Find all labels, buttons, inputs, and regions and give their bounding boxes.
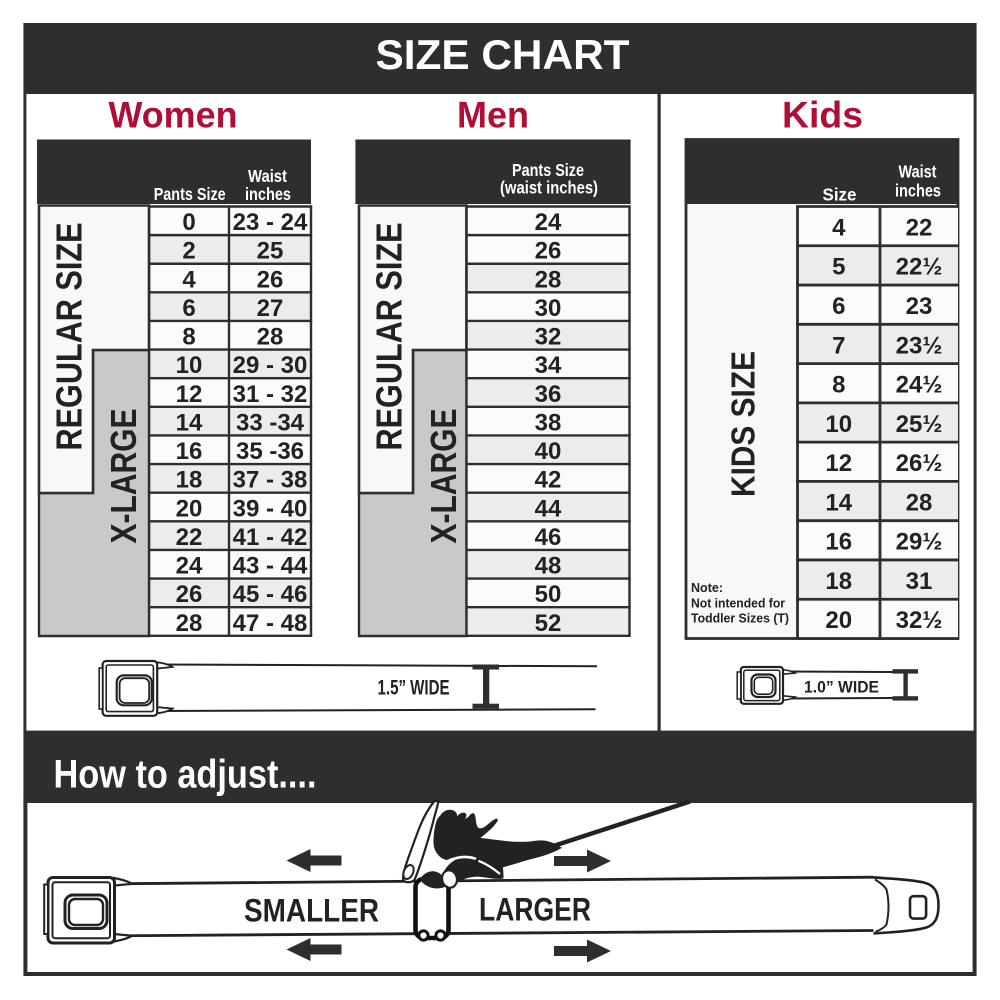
svg-text:33 -34: 33 -34: [236, 409, 305, 436]
svg-text:5: 5: [832, 254, 845, 281]
svg-text:32: 32: [535, 324, 562, 351]
svg-text:4: 4: [832, 214, 846, 241]
svg-text:41 - 42: 41 - 42: [233, 524, 308, 551]
svg-text:25½: 25½: [896, 411, 943, 438]
svg-text:Size: Size: [823, 185, 857, 205]
svg-text:8: 8: [182, 324, 195, 351]
svg-text:SMALLER: SMALLER: [244, 893, 379, 929]
svg-text:44: 44: [535, 495, 562, 522]
svg-text:Toddler Sizes (T): Toddler Sizes (T): [691, 611, 789, 626]
svg-text:KIDS SIZE: KIDS SIZE: [724, 351, 761, 497]
svg-text:LARGER: LARGER: [479, 892, 591, 928]
svg-text:40: 40: [535, 438, 562, 465]
svg-text:28: 28: [257, 324, 284, 351]
svg-text:X-LARGE: X-LARGE: [103, 409, 144, 544]
svg-text:10: 10: [176, 352, 203, 379]
svg-text:Men: Men: [457, 94, 529, 136]
svg-text:(waist inches): (waist inches): [500, 178, 598, 198]
svg-text:6: 6: [832, 293, 845, 320]
svg-text:26: 26: [257, 266, 284, 293]
svg-text:48: 48: [535, 553, 562, 580]
svg-text:Pants Size: Pants Size: [154, 184, 226, 204]
svg-text:46: 46: [535, 524, 562, 551]
svg-text:Women: Women: [109, 94, 238, 136]
svg-text:18: 18: [176, 467, 203, 494]
svg-text:Note:: Note:: [691, 580, 723, 595]
svg-text:inches: inches: [245, 184, 291, 204]
svg-text:29½: 29½: [896, 529, 943, 556]
svg-text:Kids: Kids: [782, 94, 863, 136]
svg-text:12: 12: [825, 450, 852, 477]
svg-text:26: 26: [176, 581, 203, 608]
svg-text:24: 24: [535, 209, 562, 236]
svg-text:X-LARGE: X-LARGE: [423, 409, 464, 544]
svg-text:Waist: Waist: [899, 162, 937, 182]
svg-text:23 - 24: 23 - 24: [233, 209, 308, 236]
svg-text:27: 27: [257, 295, 284, 322]
svg-text:7: 7: [832, 332, 845, 359]
svg-text:16: 16: [176, 438, 203, 465]
svg-text:43 - 44: 43 - 44: [233, 553, 308, 580]
svg-text:20: 20: [825, 607, 852, 634]
svg-text:47 - 48: 47 - 48: [233, 610, 308, 637]
svg-text:12: 12: [176, 381, 203, 408]
svg-text:4: 4: [182, 266, 196, 293]
svg-text:23½: 23½: [896, 332, 943, 359]
svg-text:24½: 24½: [896, 372, 943, 399]
svg-text:28: 28: [906, 489, 933, 516]
svg-text:16: 16: [825, 529, 852, 556]
svg-text:Not intended for: Not intended for: [691, 596, 785, 611]
svg-text:1.5” WIDE: 1.5” WIDE: [378, 677, 450, 700]
svg-text:42: 42: [535, 467, 562, 494]
svg-text:REGULAR SIZE: REGULAR SIZE: [368, 223, 409, 451]
svg-text:2: 2: [182, 238, 195, 265]
svg-text:22: 22: [176, 524, 203, 551]
svg-text:25: 25: [257, 238, 284, 265]
svg-text:39 - 40: 39 - 40: [233, 495, 308, 522]
svg-text:22½: 22½: [896, 254, 943, 281]
svg-text:26: 26: [535, 238, 562, 265]
svg-text:22: 22: [906, 214, 933, 241]
svg-text:45 - 46: 45 - 46: [233, 581, 308, 608]
svg-text:35 -36: 35 -36: [236, 438, 304, 465]
svg-text:23: 23: [906, 293, 933, 320]
svg-text:34: 34: [535, 352, 562, 379]
svg-text:26½: 26½: [896, 450, 943, 477]
svg-text:29 - 30: 29 - 30: [233, 352, 308, 379]
svg-text:How to adjust....: How to adjust....: [54, 753, 317, 797]
svg-text:18: 18: [825, 568, 852, 595]
svg-text:6: 6: [182, 295, 195, 322]
svg-text:SIZE CHART: SIZE CHART: [376, 31, 630, 78]
svg-text:32½: 32½: [896, 607, 943, 634]
svg-text:8: 8: [832, 372, 845, 399]
svg-text:31: 31: [906, 568, 933, 595]
svg-text:37 - 38: 37 - 38: [233, 467, 308, 494]
svg-text:52: 52: [535, 610, 562, 637]
svg-text:Waist: Waist: [248, 166, 287, 186]
svg-text:10: 10: [825, 411, 852, 438]
svg-text:38: 38: [535, 409, 562, 436]
svg-text:24: 24: [176, 553, 203, 580]
svg-text:1.0” WIDE: 1.0” WIDE: [804, 678, 879, 697]
svg-text:28: 28: [176, 610, 203, 637]
svg-text:36: 36: [535, 381, 562, 408]
svg-text:0: 0: [182, 209, 195, 236]
svg-text:30: 30: [535, 295, 562, 322]
svg-text:50: 50: [535, 581, 562, 608]
svg-text:inches: inches: [895, 180, 941, 200]
svg-text:14: 14: [825, 489, 852, 516]
svg-text:28: 28: [535, 266, 562, 293]
svg-text:31 - 32: 31 - 32: [233, 381, 308, 408]
svg-text:14: 14: [176, 409, 203, 436]
svg-text:REGULAR SIZE: REGULAR SIZE: [48, 223, 89, 451]
svg-text:20: 20: [176, 495, 203, 522]
